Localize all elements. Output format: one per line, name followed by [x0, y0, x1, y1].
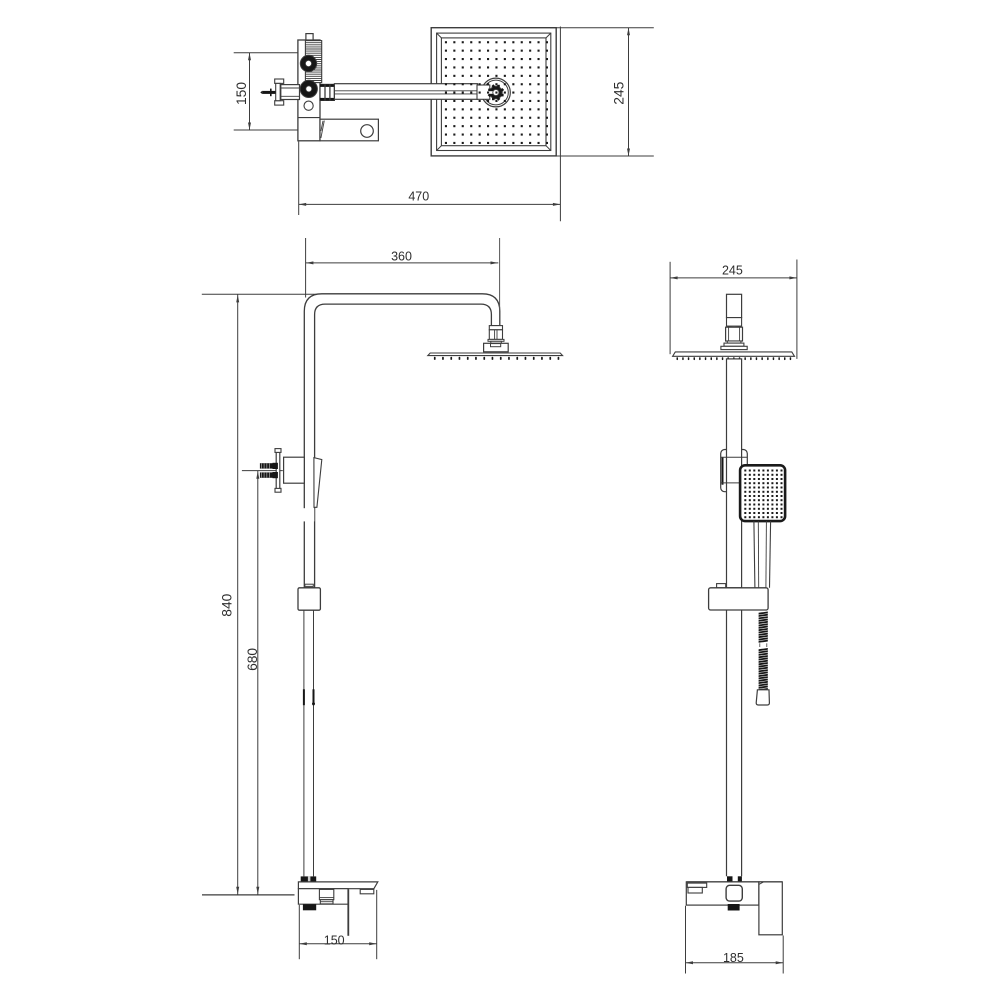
svg-text:245: 245: [722, 263, 743, 277]
svg-text:150: 150: [234, 82, 249, 105]
svg-text:150: 150: [324, 934, 345, 948]
svg-text:185: 185: [723, 951, 744, 965]
svg-text:840: 840: [220, 593, 235, 616]
svg-text:360: 360: [391, 249, 412, 263]
svg-text:470: 470: [408, 189, 429, 203]
svg-text:680: 680: [245, 648, 260, 671]
svg-text:245: 245: [611, 81, 626, 104]
